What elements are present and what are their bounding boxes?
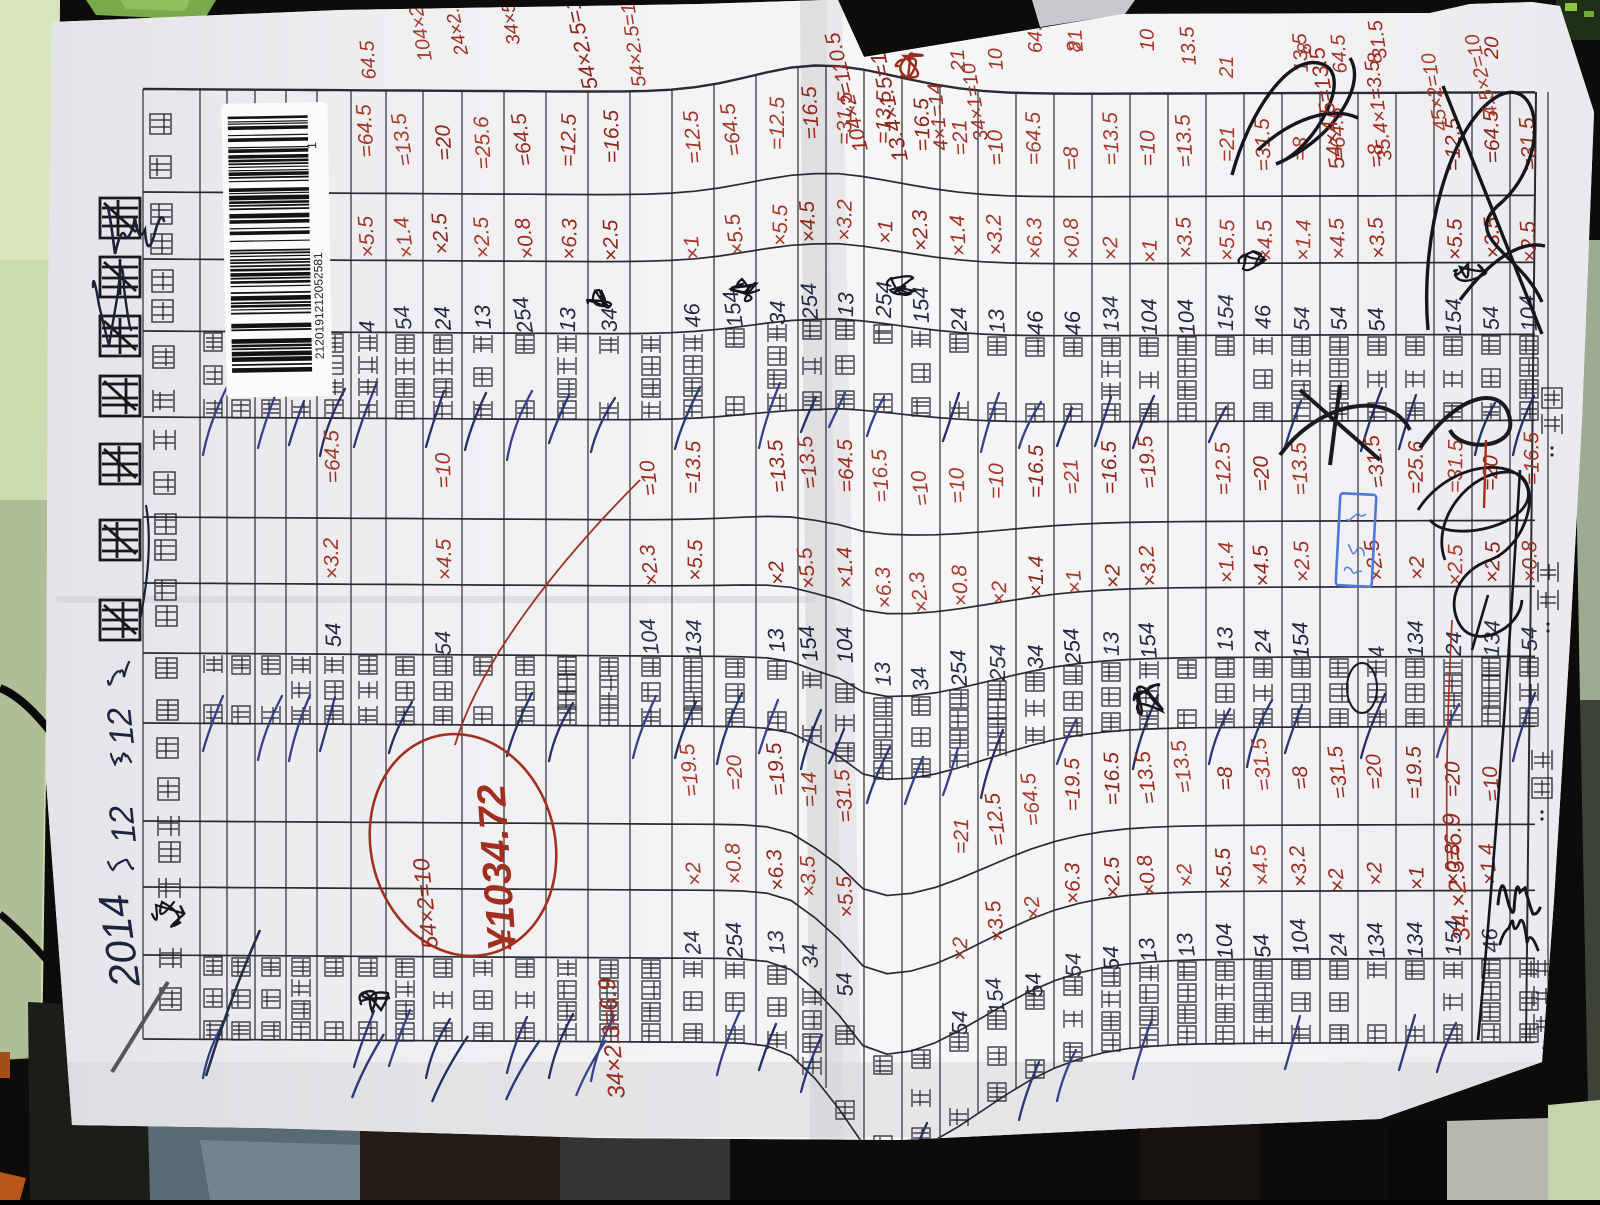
svg-text:=16.5: =16.5 — [868, 448, 894, 503]
svg-text:×2: ×2 — [1101, 564, 1125, 589]
svg-text:=13.5: =13.5 — [682, 440, 705, 494]
svg-text:104: 104 — [635, 617, 664, 657]
svg-text:=8: =8 — [1214, 765, 1238, 791]
svg-text:×6.3: ×6.3 — [871, 566, 897, 609]
svg-text:13: 13 — [833, 291, 858, 317]
svg-text:=10: =10 — [1136, 130, 1160, 166]
svg-text:24: 24 — [679, 929, 706, 957]
svg-text:134: 134 — [1479, 620, 1505, 657]
svg-text:×1: ×1 — [1062, 569, 1087, 595]
svg-text:×1: ×1 — [1405, 866, 1429, 891]
svg-text:254: 254 — [721, 921, 749, 960]
svg-text:×1: ×1 — [680, 235, 705, 261]
svg-text:13: 13 — [1212, 626, 1238, 652]
svg-text:×2: ×2 — [682, 860, 707, 886]
svg-text:=16.5: =16.5 — [1025, 445, 1048, 499]
svg-text:=13.5: =13.5 — [1287, 441, 1313, 496]
svg-text:104: 104 — [1172, 298, 1200, 336]
svg-text:54: 54 — [947, 1010, 972, 1035]
svg-text:×5.5: ×5.5 — [833, 875, 859, 919]
svg-text:21: 21 — [1216, 56, 1238, 79]
svg-text:4: 4 — [354, 319, 380, 333]
svg-text:104: 104 — [831, 626, 858, 664]
svg-text:=8: =8 — [1288, 764, 1314, 791]
svg-text:154: 154 — [794, 624, 823, 664]
svg-text:×6.3: ×6.3 — [1061, 862, 1085, 904]
svg-text:×2.5: ×2.5 — [428, 212, 454, 255]
svg-text:×5.5: ×5.5 — [1211, 847, 1237, 890]
svg-text:=16.5: =16.5 — [1100, 751, 1125, 805]
svg-text:254: 254 — [945, 649, 972, 688]
svg-text:=20: =20 — [1441, 761, 1465, 797]
svg-text:=12.5: =12.5 — [766, 97, 789, 150]
svg-text:×2: ×2 — [1020, 894, 1046, 921]
svg-text:154: 154 — [1287, 621, 1314, 659]
svg-text:104: 104 — [1211, 922, 1238, 960]
svg-text:54: 54 — [1363, 306, 1390, 333]
svg-text:×1: ×1 — [1139, 239, 1162, 263]
svg-text:254: 254 — [985, 644, 1010, 682]
svg-text:×2.5: ×2.5 — [1100, 856, 1125, 899]
svg-text:×5.5: ×5.5 — [769, 204, 792, 246]
svg-text:×3.2: ×3.2 — [320, 537, 344, 580]
svg-text:54: 54 — [320, 622, 346, 647]
svg-text:×0.8: ×0.8 — [721, 842, 747, 885]
svg-text:24: 24 — [1324, 931, 1352, 959]
svg-text:×2: ×2 — [765, 559, 790, 585]
svg-text:=13.5: =13.5 — [1171, 113, 1198, 168]
svg-text:54: 54 — [1098, 945, 1124, 970]
svg-text:=16.5: =16.5 — [1098, 440, 1122, 494]
svg-text:13: 13 — [869, 661, 895, 688]
svg-text:13: 13 — [1171, 930, 1200, 959]
svg-text:10: 10 — [985, 47, 1008, 71]
svg-text:×3.5: ×3.5 — [1172, 216, 1198, 259]
svg-text:13: 13 — [555, 306, 580, 332]
svg-text:=8: =8 — [1060, 145, 1084, 171]
svg-text:×3.2: ×3.2 — [982, 213, 1008, 256]
svg-text:54: 54 — [1517, 626, 1542, 651]
svg-text:154: 154 — [1441, 298, 1466, 335]
svg-text:54: 54 — [389, 304, 417, 332]
svg-text:154: 154 — [980, 976, 1010, 1016]
svg-text:24: 24 — [429, 305, 456, 332]
svg-text:×3.2: ×3.2 — [1285, 844, 1313, 888]
svg-text:254: 254 — [1058, 627, 1086, 667]
svg-text:13: 13 — [983, 307, 1010, 334]
svg-text:=21: =21 — [950, 818, 973, 854]
svg-text:13: 13 — [470, 304, 496, 331]
svg-text:×3.2: ×3.2 — [833, 199, 857, 241]
svg-text:=10: =10 — [636, 459, 663, 498]
svg-text:=10: =10 — [431, 452, 456, 489]
svg-text:=16.5: =16.5 — [600, 109, 624, 163]
svg-text:54: 54 — [831, 971, 858, 997]
svg-text:=10: =10 — [945, 467, 970, 504]
svg-text:254: 254 — [796, 282, 823, 321]
svg-text:54: 54 — [1248, 932, 1276, 960]
svg-text:=21: =21 — [1216, 126, 1239, 162]
svg-text:12: 12 — [102, 803, 144, 845]
svg-text:=20: =20 — [1362, 753, 1388, 791]
svg-text:×6.3: ×6.3 — [558, 218, 582, 260]
svg-text:=21: =21 — [1059, 458, 1085, 495]
svg-text:34: 34 — [906, 665, 934, 693]
svg-text:46: 46 — [679, 301, 706, 328]
svg-text:=10: =10 — [985, 463, 1008, 499]
svg-text:×2: ×2 — [1099, 236, 1123, 261]
svg-text:×1.4: ×1.4 — [833, 546, 858, 588]
svg-text:=12.5: =12.5 — [1211, 441, 1236, 495]
svg-text:254: 254 — [871, 281, 897, 319]
svg-text:12: 12 — [100, 705, 142, 747]
svg-text:=16.5: =16.5 — [798, 85, 824, 140]
svg-text:134: 134 — [1403, 620, 1428, 657]
svg-text:154: 154 — [1133, 621, 1162, 660]
svg-text:×2.5: ×2.5 — [1516, 220, 1542, 263]
svg-text:=31.5: =31.5 — [1444, 439, 1467, 493]
svg-text:×1.4: ×1.4 — [1292, 219, 1316, 261]
svg-text:×2.5: ×2.5 — [599, 219, 623, 261]
svg-text:×5.5: ×5.5 — [684, 539, 707, 581]
svg-text:×1.4: ×1.4 — [1475, 842, 1502, 886]
svg-text:54: 54 — [1325, 305, 1352, 331]
svg-text:21: 21 — [1064, 28, 1088, 53]
svg-text:=12.5: =12.5 — [557, 113, 581, 167]
svg-text:13.5: 13.5 — [1176, 25, 1201, 66]
svg-text:×3.2: ×3.2 — [1135, 544, 1162, 588]
svg-text:46: 46 — [1250, 304, 1276, 330]
svg-text:46: 46 — [1059, 310, 1086, 337]
svg-text:×2: ×2 — [988, 581, 1011, 605]
svg-text:×0.8: ×0.8 — [1059, 217, 1085, 260]
svg-text:×2.5: ×2.5 — [1290, 540, 1315, 583]
svg-text:54: 54 — [1020, 971, 1048, 998]
svg-text:34: 34 — [596, 307, 622, 332]
svg-text:×4.5: ×4.5 — [1325, 217, 1351, 260]
svg-text:54: 54 — [1060, 952, 1086, 977]
svg-text:134: 134 — [1362, 921, 1390, 960]
svg-text:=12.5: =12.5 — [679, 109, 707, 164]
svg-text:×4.5: ×4.5 — [1253, 219, 1278, 262]
svg-text:×6.3: ×6.3 — [1023, 217, 1047, 259]
svg-text:134: 134 — [681, 619, 706, 656]
svg-text:×5.5: ×5.5 — [1216, 219, 1239, 261]
svg-text:13: 13 — [762, 928, 790, 956]
svg-text:10: 10 — [1137, 29, 1159, 52]
svg-text:×6.3: ×6.3 — [763, 848, 790, 892]
svg-text:2120191212052581: 2120191212052581 — [311, 252, 327, 359]
svg-text:34: 34 — [1023, 644, 1048, 669]
svg-text:34: 34 — [765, 300, 790, 325]
svg-text:=20: =20 — [431, 124, 457, 162]
svg-text:×2: ×2 — [949, 937, 972, 961]
svg-text:104: 104 — [1136, 298, 1162, 335]
svg-text:×2.3: ×2.3 — [908, 209, 933, 252]
svg-text:=64.5: =64.5 — [320, 429, 345, 483]
svg-text:×2: ×2 — [1324, 866, 1350, 893]
svg-text:64.5: 64.5 — [356, 39, 381, 80]
svg-text:1: 1 — [304, 142, 319, 149]
svg-text:13: 13 — [1098, 631, 1124, 657]
svg-text:×2: ×2 — [1172, 861, 1198, 888]
svg-text:=25.6: =25.6 — [1405, 441, 1428, 495]
svg-text:34: 34 — [797, 943, 823, 968]
svg-text:×2.5: ×2.5 — [470, 216, 495, 259]
svg-text:24: 24 — [1441, 631, 1466, 657]
svg-text:×5.5: ×5.5 — [1443, 218, 1467, 260]
svg-text:×4.5: ×4.5 — [795, 200, 821, 243]
svg-text:=25.6: =25.6 — [470, 115, 496, 170]
svg-text:24: 24 — [946, 306, 972, 333]
svg-text:=31.5: =31.5 — [831, 768, 858, 823]
svg-text:×2: ×2 — [1406, 556, 1429, 580]
svg-text:=20: =20 — [723, 754, 748, 791]
svg-text:=20: =20 — [1249, 455, 1275, 493]
svg-text:=64.5: =64.5 — [352, 103, 379, 158]
svg-text:×3.5: ×3.5 — [796, 855, 821, 898]
svg-text:104: 104 — [1285, 917, 1314, 956]
svg-text:46: 46 — [1022, 310, 1048, 336]
svg-text:×2: ×2 — [1363, 860, 1388, 886]
svg-text:=19.5: =19.5 — [1402, 745, 1427, 799]
svg-text:×1: ×1 — [874, 220, 897, 244]
svg-text:×5.5: ×5.5 — [354, 215, 380, 258]
svg-text:13: 13 — [1133, 935, 1162, 964]
svg-text:154: 154 — [1213, 294, 1238, 331]
svg-text:=64.5: =64.5 — [1022, 111, 1046, 165]
svg-text:24: 24 — [1249, 628, 1276, 655]
svg-text:13: 13 — [763, 626, 790, 654]
svg-text:=64.5: =64.5 — [834, 438, 859, 492]
svg-text:×3.5: ×3.5 — [1364, 216, 1391, 260]
svg-text:=14: =14 — [798, 771, 822, 808]
svg-text:=13.5: =13.5 — [1099, 111, 1124, 165]
svg-text:134: 134 — [1097, 295, 1124, 333]
svg-text:134: 134 — [1402, 921, 1428, 958]
svg-text:×4.5: ×4.5 — [1249, 544, 1275, 587]
svg-text:×4.5: ×4.5 — [432, 538, 457, 581]
svg-text:54: 54 — [430, 630, 456, 656]
svg-text:×0.8: ×0.8 — [948, 564, 973, 607]
svg-text:54: 54 — [1289, 306, 1314, 331]
svg-text:54: 54 — [1478, 305, 1504, 331]
svg-text:×1.4: ×1.4 — [1025, 556, 1048, 598]
svg-text:×1.4: ×1.4 — [946, 214, 971, 257]
svg-text:=19.5: =19.5 — [1061, 757, 1085, 811]
svg-text:×1.4: ×1.4 — [1215, 541, 1239, 583]
